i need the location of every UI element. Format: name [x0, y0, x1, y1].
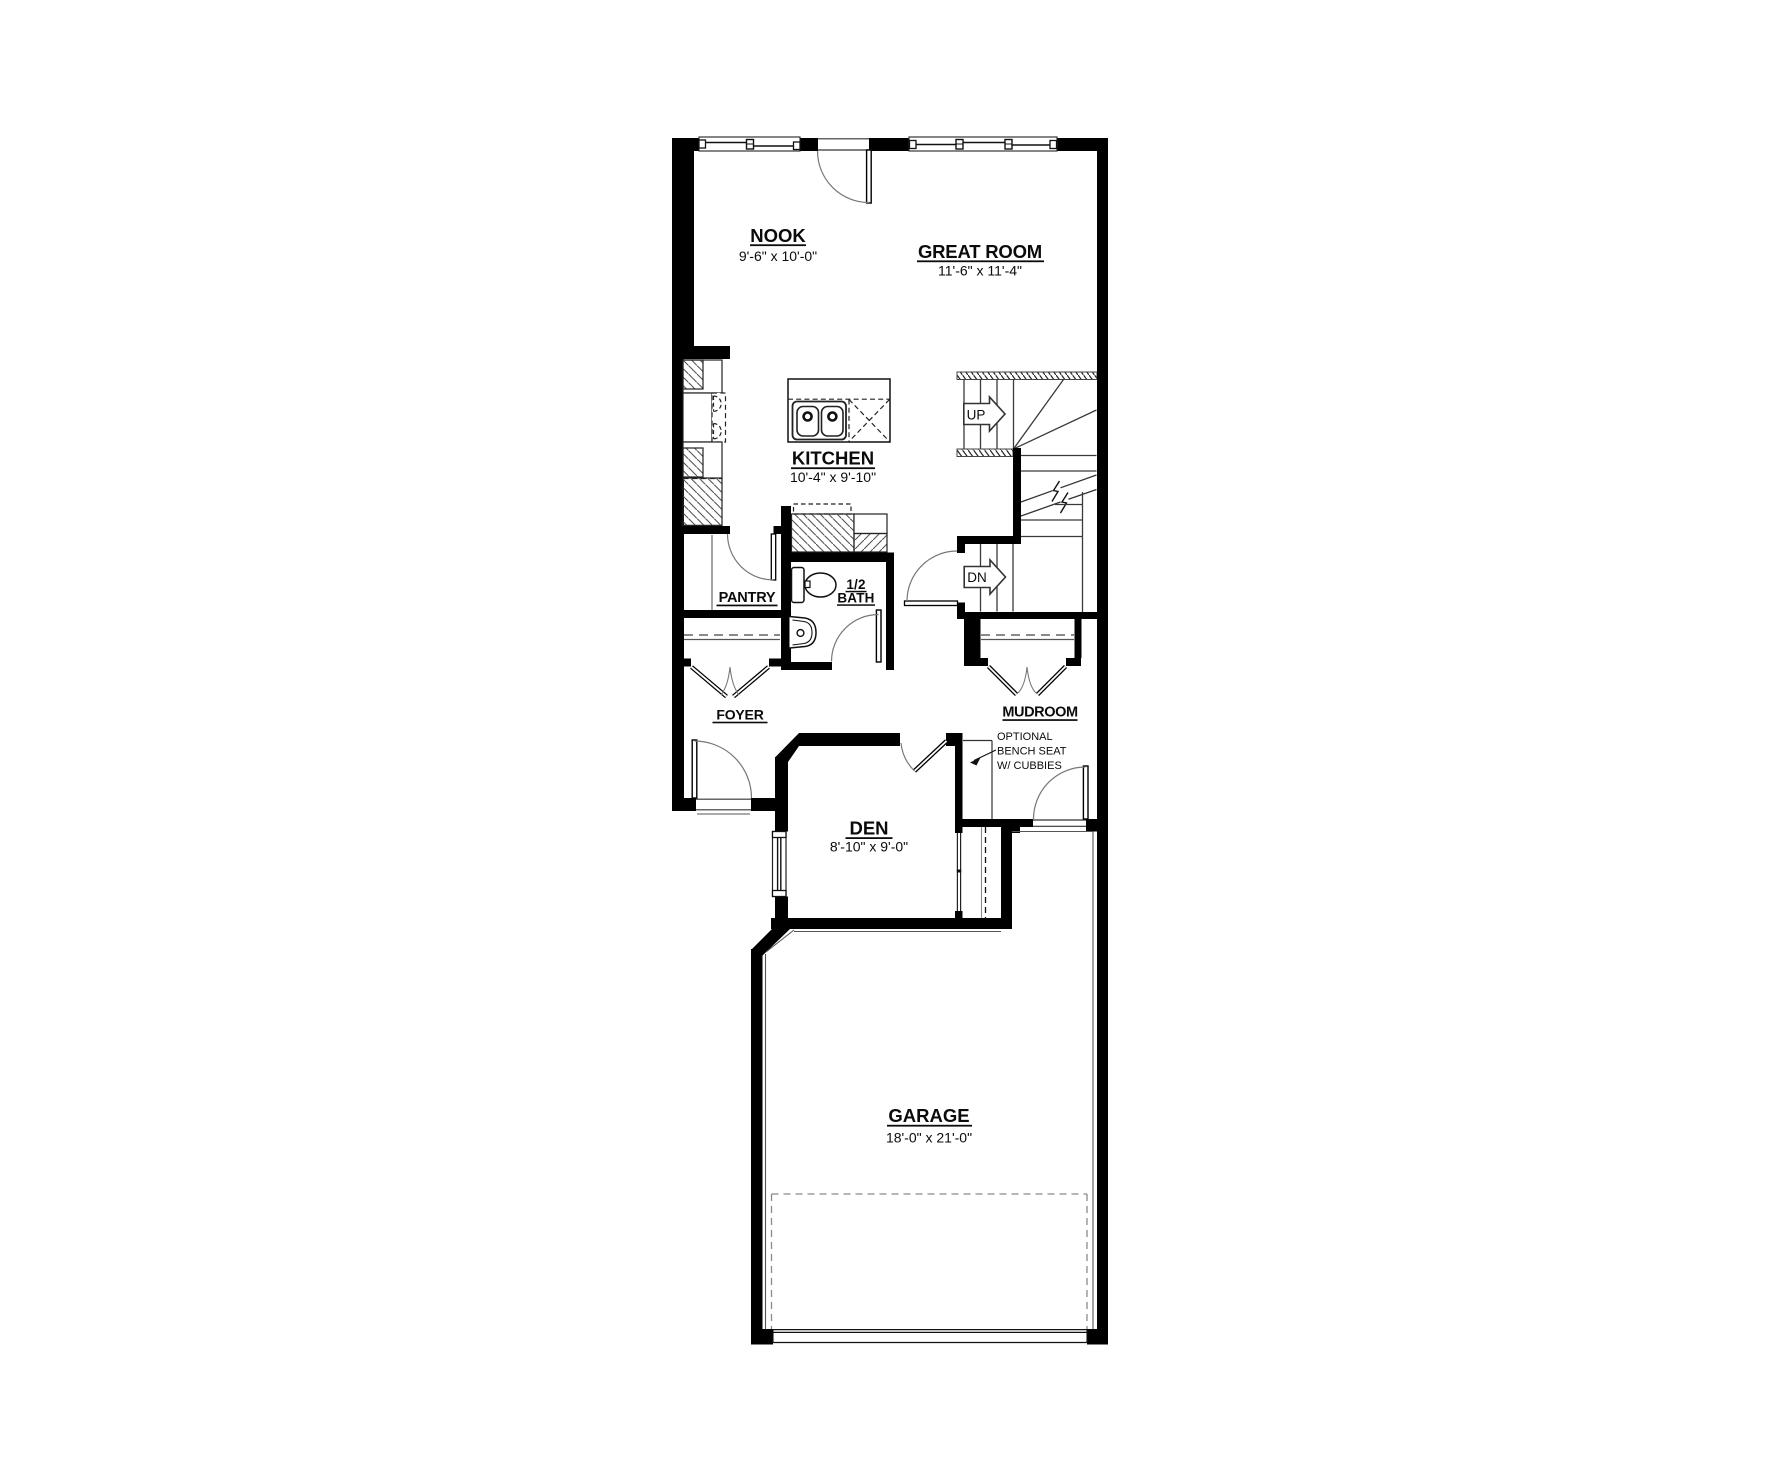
svg-text:GREAT ROOM: GREAT ROOM: [918, 241, 1042, 262]
svg-text:MUDROOM: MUDROOM: [1002, 705, 1078, 721]
svg-text:BENCH SEAT: BENCH SEAT: [997, 746, 1067, 758]
svg-text:DEN: DEN: [849, 818, 888, 839]
svg-text:PANTRY: PANTRY: [719, 590, 776, 606]
svg-text:BATH: BATH: [837, 591, 874, 606]
svg-text:UP: UP: [967, 408, 986, 423]
svg-text:18'-0" x 21'-0": 18'-0" x 21'-0": [886, 1130, 972, 1146]
svg-text:OPTIONAL: OPTIONAL: [997, 731, 1053, 743]
svg-text:GARAGE: GARAGE: [888, 1105, 969, 1126]
svg-text:W/ CUBBIES: W/ CUBBIES: [997, 760, 1062, 772]
svg-text:KITCHEN: KITCHEN: [792, 448, 874, 469]
svg-text:DN: DN: [967, 570, 987, 585]
svg-text:10'-4" x 9'-10": 10'-4" x 9'-10": [790, 469, 876, 485]
svg-text:11'-6" x 11'-4": 11'-6" x 11'-4": [938, 263, 1022, 279]
svg-text:NOOK: NOOK: [750, 225, 806, 246]
svg-text:9'-6" x 10'-0": 9'-6" x 10'-0": [739, 248, 817, 264]
svg-text:8'-10" x 9'-0": 8'-10" x 9'-0": [830, 839, 908, 855]
svg-text:FOYER: FOYER: [716, 707, 763, 723]
